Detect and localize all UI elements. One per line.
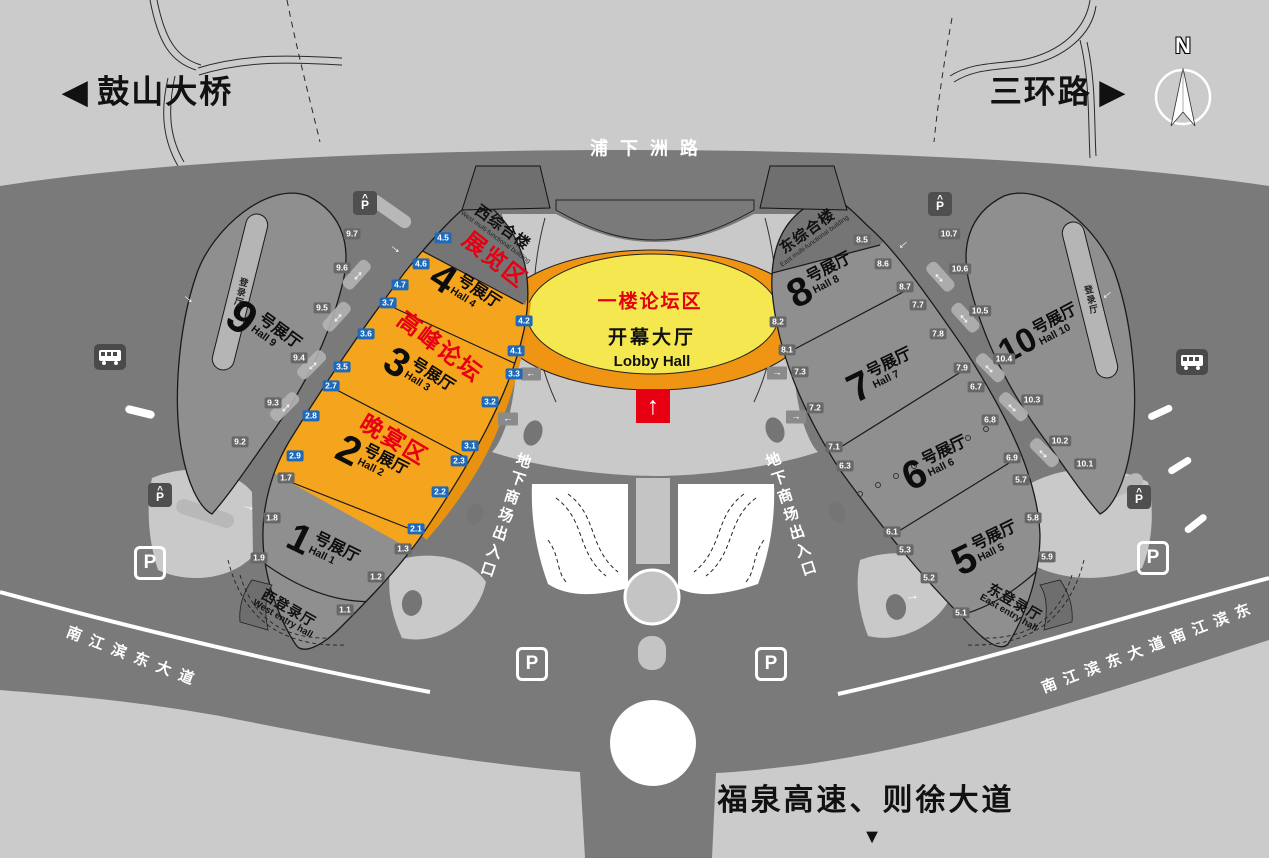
fuquan-expressway-label: 福泉高速、则徐大道 [718,785,1015,817]
gate-badge: 4.5 [435,232,452,243]
roundabout [610,700,696,786]
down-arrow-glyph: ▼ [862,827,882,849]
gate-badge: 7.9 [954,362,971,373]
gate-badge: 3.1 [462,440,479,451]
covered-parking-icon: ^P [928,192,952,216]
bus-stop-icon [1176,349,1208,375]
gate-badge: 7.8 [930,328,947,339]
gate-badge: 5.9 [1039,551,1056,562]
gate-badge: 6.1 [884,526,901,537]
third-ring-road-label: 三环路 ▶ [990,75,1127,110]
gate-badge: 2.1 [408,523,425,534]
parking-icon: P [755,647,787,681]
gate-badge: 9.4 [291,352,308,363]
gate-badge: 2.9 [287,450,304,461]
gate-badge: 9.2 [232,436,249,447]
compass-north-label: N [1175,34,1191,58]
lobby-arrow-chip-icon: → [786,411,806,424]
covered-parking-icon: ^P [1127,485,1151,509]
left-arrow-glyph: ◀ [63,75,90,110]
gate-badge: 10.5 [969,305,991,316]
gate-badge: 7.1 [826,441,843,452]
gate-badge: 9.6 [334,262,351,273]
gate-badge: 3.2 [482,396,499,407]
gate-badge: 3.5 [334,361,351,372]
venue-map: ◀ 鼓山大桥 三环路 ▶ N 浦下洲路 西综合楼 West multi-func… [0,0,1269,858]
gate-badge: 4.6 [413,258,430,269]
gate-badge: 9.5 [314,302,331,313]
parking-icon: P [134,546,166,580]
gate-badge: 1.8 [264,512,281,523]
gate-badge: 8.2 [770,316,787,327]
compass-icon [1156,68,1210,126]
gate-badge: 2.2 [432,486,449,497]
lobby-arrow-chip-icon: → [767,367,787,380]
gate-badge: 6.9 [1004,452,1021,463]
parking-icon: P [1137,541,1169,575]
gate-badge: 10.1 [1074,458,1096,469]
base-map-shapes [0,0,1269,858]
covered-parking-icon: ^P [353,191,377,215]
lobby-forum-zone-label: 一楼论坛区 [597,293,702,314]
gate-badge: 8.6 [875,258,892,269]
gate-badge: 10.6 [949,263,971,274]
gate-badge: 2.7 [323,380,340,391]
gate-badge: 6.3 [837,460,854,471]
gate-badge: 6.8 [982,414,999,425]
gate-badge: 6.7 [968,381,985,392]
gate-badge: 4.1 [508,345,525,356]
gate-badge: 1.9 [251,552,268,563]
gate-badge: 1.2 [368,571,385,582]
gate-badge: 4.7 [392,279,409,290]
entrance-up-arrow-icon: ↑ [636,389,670,423]
lobby-name-label: 开幕大厅 [608,329,696,350]
lobby-arrow-chip-icon: ← [521,368,541,381]
puxiazhou-road-label: 浦下洲路 [590,139,710,158]
gate-badge: 5.7 [1013,474,1030,485]
gate-badge: 10.7 [938,228,960,239]
right-arrow-glyph: ▶ [1100,75,1127,110]
gushan-bridge-label: ◀ 鼓山大桥 [63,75,234,110]
gate-badge: 2.8 [303,410,320,421]
parking-icon: P [516,647,548,681]
lobby-arrow-chip-icon: ← [498,413,518,426]
gate-badge: 1.7 [278,472,295,483]
gate-badge: 10.2 [1049,435,1071,446]
gate-badge: 3.3 [506,368,523,379]
gate-badge: 8.5 [854,234,871,245]
gate-badge: 5.3 [897,544,914,555]
gate-badge: 7.3 [792,366,809,377]
gate-badge: 1.3 [395,543,412,554]
gate-badge: 9.3 [265,397,282,408]
gate-badge: 8.7 [897,281,914,292]
gate-badge: 3.7 [380,297,397,308]
lobby-name-en-label: Lobby Hall [614,354,691,370]
gate-badge: 3.6 [358,328,375,339]
gate-badge: 8.1 [779,344,796,355]
gate-badge: 10.3 [1021,394,1043,405]
gate-badge: 4.2 [516,315,533,326]
gate-badge: 7.2 [807,402,824,413]
gate-badge: 1.1 [337,604,354,615]
bus-stop-icon [94,344,126,370]
gate-badge: 9.7 [344,228,361,239]
gate-badge: 7.7 [910,299,927,310]
gate-badge: 5.1 [953,607,970,618]
covered-parking-icon: ^P [148,483,172,507]
gate-badge: 5.2 [921,572,938,583]
gate-badge: 2.3 [451,455,468,466]
gate-badge: 5.8 [1025,512,1042,523]
direction-arrow-icon: → [904,586,920,604]
gate-badge: 10.4 [993,353,1015,364]
